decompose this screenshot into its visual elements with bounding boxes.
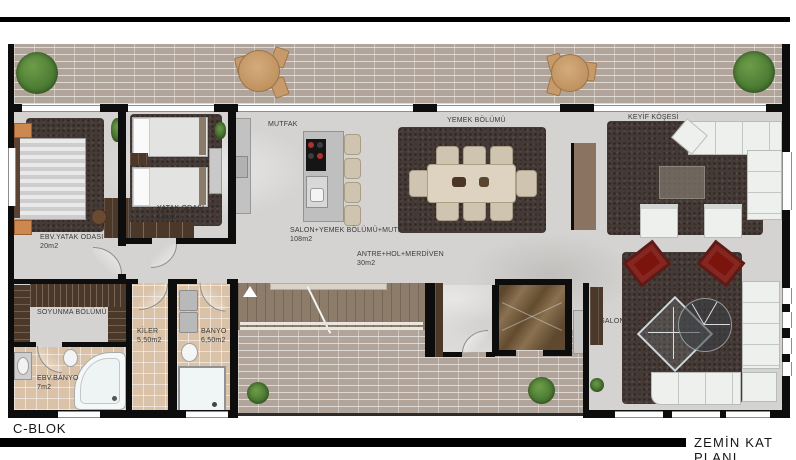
wall-segment <box>495 279 572 285</box>
window <box>782 288 792 304</box>
pedestal-sink <box>63 349 78 367</box>
room-label-hall: ANTRE+HOL+MERDİVEN 30m2 <box>357 250 444 268</box>
terrace-table <box>238 50 280 92</box>
dining-chair <box>516 170 537 197</box>
window <box>8 148 16 206</box>
tv-panel <box>571 143 596 230</box>
plant-icon <box>590 378 604 392</box>
sofa <box>747 150 782 220</box>
room-label-master-bedroom: EBV.YATAK ODASI 20m2 <box>40 233 103 251</box>
room-label-salon: SALON <box>600 317 625 326</box>
wall-segment <box>62 342 126 347</box>
window <box>58 411 100 418</box>
wardrobe <box>108 307 126 347</box>
glass-table-round <box>678 298 732 352</box>
armchair <box>704 204 742 238</box>
window <box>782 362 792 376</box>
bed-pillow <box>133 118 150 156</box>
window <box>782 312 792 328</box>
vanity-cabinet <box>179 290 198 311</box>
bathtub-drain <box>112 396 117 401</box>
bush-icon <box>528 377 555 404</box>
terrace-edge-line <box>238 413 583 416</box>
wall-segment <box>230 283 238 418</box>
wardrobe <box>14 285 30 347</box>
terrace-table <box>551 54 589 92</box>
room-label-hall-name: ANTRE+HOL+MERDİVEN <box>357 251 444 258</box>
window <box>437 105 560 112</box>
tree-icon <box>733 51 775 93</box>
radiator <box>209 148 222 194</box>
bed-pillow <box>133 168 150 206</box>
room-label-dressing: SOYUNMA BÖLÜMÜ <box>37 308 107 317</box>
wall-segment <box>228 110 236 244</box>
bed-foot <box>199 167 206 205</box>
dining-table <box>427 164 516 203</box>
wall-segment <box>425 283 435 357</box>
wardrobe <box>30 283 126 307</box>
room-label-pleasure-corner: KEYİF KÖŞESİ <box>628 113 679 122</box>
desk-chair <box>91 209 107 225</box>
ottoman <box>742 372 777 402</box>
wall-segment <box>14 342 36 347</box>
kitchen-counter-sink <box>234 156 248 178</box>
wall-segment <box>413 104 437 112</box>
burner-icon <box>317 153 323 159</box>
room-label-open-living-name: SALON+YEMEK BÖLÜMÜ+MUTFAK <box>290 227 412 234</box>
room-label-bedroom-area: 13m2 <box>157 214 175 221</box>
wall-segment <box>766 104 782 112</box>
room-label-master-bath-name: EBV.BANYO <box>37 375 79 382</box>
armchair <box>640 204 678 238</box>
burner-icon <box>308 142 314 148</box>
room-label-dining: YEMEK BÖLÜMÜ <box>447 116 506 125</box>
wall-segment <box>118 110 126 246</box>
window <box>782 152 792 210</box>
window <box>726 411 770 418</box>
wall-segment <box>543 350 572 356</box>
window <box>594 105 766 112</box>
sofa <box>651 372 741 405</box>
window <box>672 411 720 418</box>
bathroom-sink-bowl <box>17 357 29 375</box>
room-label-pantry: KİLER 5,50m2 <box>137 327 162 345</box>
wall-segment <box>176 238 228 244</box>
desk <box>104 198 130 238</box>
floor-plan-page: MUTFAK YEMEK BÖLÜMÜ KEYİF KÖŞESİ SALON+Y… <box>0 0 796 460</box>
block-label: C-BLOK <box>13 421 66 436</box>
room-label-bedroom-name: YATAK ODASI <box>157 205 204 212</box>
footer-bar <box>0 438 686 447</box>
room-label-open-living: SALON+YEMEK BÖLÜMÜ+MUTFAK 108m2 <box>290 226 412 244</box>
wall-segment <box>126 238 152 244</box>
island-sink-bowl <box>310 188 324 202</box>
wall-segment <box>492 350 516 356</box>
stair-step-line <box>240 327 423 330</box>
coffee-table <box>659 166 705 199</box>
wall-segment <box>8 279 138 284</box>
vanity-cabinet <box>179 312 198 333</box>
window <box>22 105 100 112</box>
room-label-bathroom: BANYO 6,50m2 <box>201 327 227 345</box>
shower <box>178 366 226 416</box>
table-decor <box>479 177 489 187</box>
nightstand <box>130 153 148 165</box>
room-label-pantry-name: KİLER <box>137 328 158 335</box>
toilet <box>181 343 198 362</box>
burner-icon <box>317 142 323 148</box>
wall-segment <box>443 352 462 357</box>
nightstand <box>14 220 32 235</box>
room-label-master-bedroom-name: EBV.YATAK ODASI <box>40 234 103 241</box>
room-label-master-bath: EBV.BANYO 7m2 <box>37 374 79 392</box>
tree-icon <box>16 52 58 94</box>
stairs-landing <box>270 283 387 290</box>
room-label-bathroom-name: BANYO <box>201 328 227 335</box>
room-label-kitchen: MUTFAK <box>268 120 298 129</box>
wall-segment <box>8 104 22 112</box>
stair-step-line <box>240 322 423 325</box>
window <box>186 411 228 418</box>
wardrobe <box>130 222 194 238</box>
shower-drain <box>212 402 217 407</box>
room-label-hall-area: 30m2 <box>357 260 375 267</box>
wall-segment <box>583 283 589 410</box>
bush-icon <box>247 382 269 404</box>
room-label-bathroom-area: 6,50m2 <box>201 337 226 344</box>
glass-table-line <box>673 307 674 359</box>
sofa <box>742 281 780 369</box>
room-label-open-living-area: 108m2 <box>290 236 312 243</box>
window <box>782 338 792 354</box>
hall-cabinet <box>435 283 443 357</box>
master-bed <box>14 138 86 220</box>
nightstand <box>14 123 32 138</box>
bed-foot <box>199 117 206 155</box>
burner-icon <box>308 153 314 159</box>
room-label-bedroom: YATAK ODASI 13m2 <box>157 204 204 222</box>
window <box>238 105 413 112</box>
top-border-line <box>0 17 790 22</box>
wall-segment <box>565 285 572 356</box>
glass-spoke <box>704 324 730 325</box>
room-label-master-bedroom-area: 20m2 <box>40 243 58 250</box>
bar-stool <box>344 182 361 203</box>
bar-stool <box>344 205 361 226</box>
plan-title: ZEMİN KAT PLANI <box>694 435 796 460</box>
window <box>615 411 663 418</box>
wall-segment <box>8 44 14 418</box>
bar-stool <box>344 158 361 179</box>
terrace-top <box>14 44 782 104</box>
table-decor <box>452 177 466 187</box>
stairs-up-arrow-icon <box>243 286 257 297</box>
room-label-master-bath-area: 7m2 <box>37 384 51 391</box>
room-label-pantry-area: 5,50m2 <box>137 337 162 344</box>
window <box>128 105 214 112</box>
bar-stool <box>344 134 361 155</box>
tv-cabinet <box>590 287 603 345</box>
wall-segment <box>126 283 132 418</box>
wall-segment <box>560 104 594 112</box>
wall-segment <box>492 285 499 356</box>
plant-icon <box>215 122 226 139</box>
wall-segment <box>168 283 177 418</box>
